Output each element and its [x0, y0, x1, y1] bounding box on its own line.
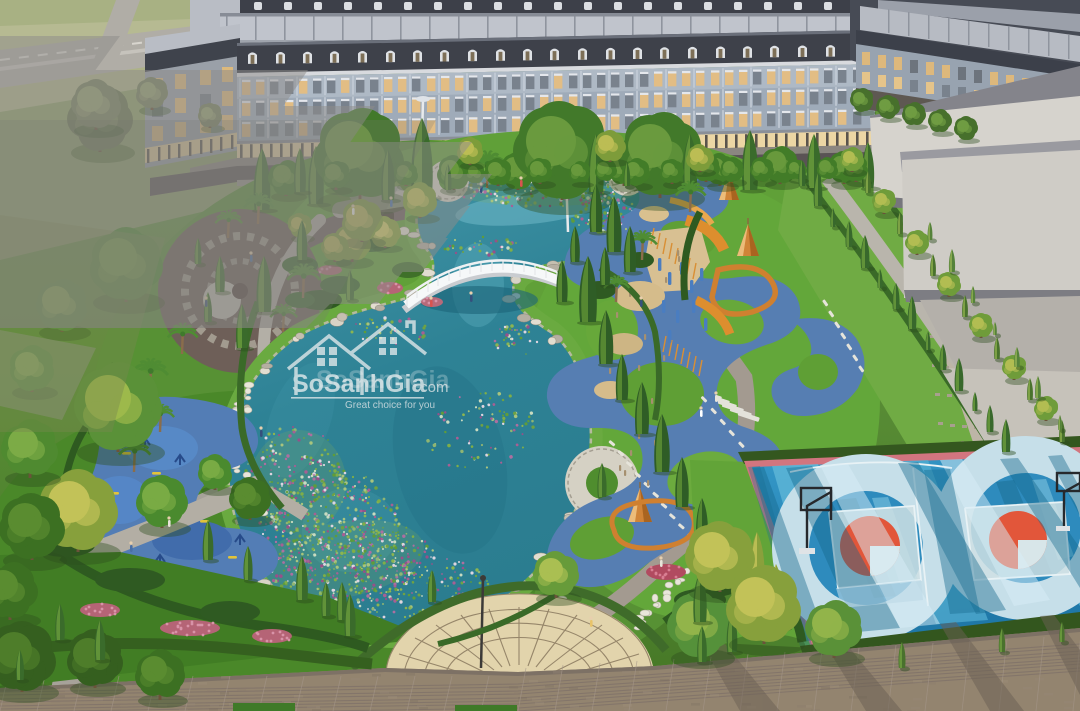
svg-text:Great choice for you: Great choice for you [345, 400, 435, 411]
svg-text:.com: .com [416, 379, 449, 396]
svg-text:SoSanhGia: SoSanhGia [292, 370, 426, 398]
